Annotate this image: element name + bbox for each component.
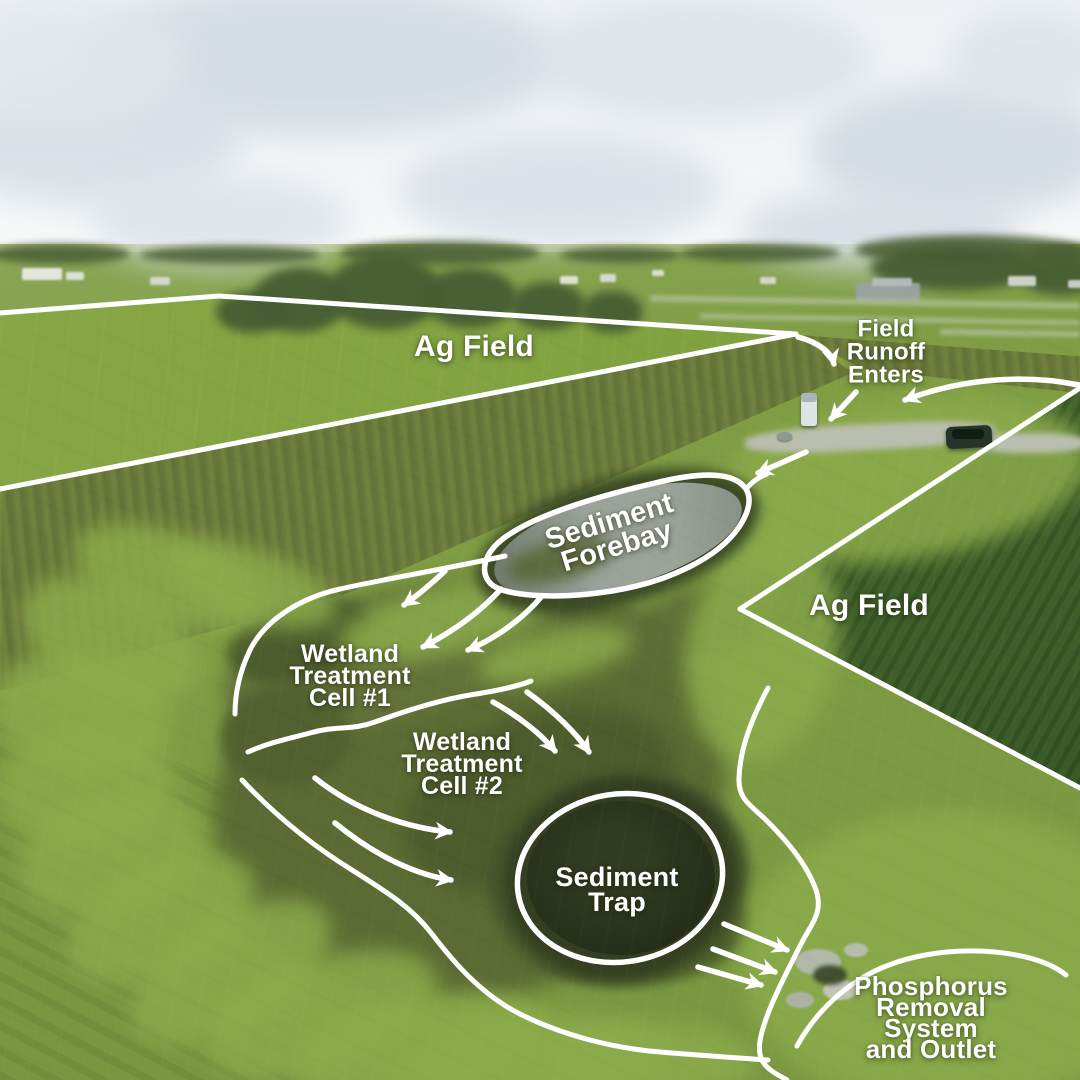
annotation-overlay xyxy=(0,0,1080,1080)
label-field-runoff: Field Runoff Enters xyxy=(847,318,926,387)
arrow-trap-outlet-a xyxy=(724,924,787,950)
label-wetland-cell-2: Wetland Treatment Cell #2 xyxy=(401,731,522,797)
label-wetland-cell-1: Wetland Treatment Cell #1 xyxy=(289,643,410,709)
boundary-corn-field-top xyxy=(740,388,1080,609)
arrow-forebay-to-cell1-c xyxy=(468,596,542,650)
label-ag-field-left: Ag Field xyxy=(414,332,534,362)
annotated-aerial-photo: Ag Field Field Runoff Enters Sediment Fo… xyxy=(0,0,1080,1080)
boundary-left-field-bottom xyxy=(0,334,796,489)
label-phosphorus-system: Phosphorus Removal System and Outlet xyxy=(854,976,1008,1060)
outline-forebay-inlet-hook xyxy=(746,474,767,489)
arrow-runoff-from-east xyxy=(905,379,1079,400)
arrow-runoff-entry xyxy=(798,337,834,364)
arrow-inlet-1 xyxy=(831,392,856,419)
outline-east-boundary xyxy=(739,688,818,1080)
arrow-trap-outlet-b xyxy=(713,949,775,972)
label-ag-field-right: Ag Field xyxy=(809,591,929,621)
arrow-trap-outlet-c xyxy=(698,967,761,985)
arrow-inlet-2 xyxy=(758,452,806,473)
arrow-cell1-to-cell2-b xyxy=(527,692,589,752)
boundary-left-field-top xyxy=(0,296,796,334)
outline-south-boundary xyxy=(242,780,768,1060)
boundary-corn-field-bottom xyxy=(740,609,1080,788)
label-sediment-trap: Sediment Trap xyxy=(555,865,678,915)
